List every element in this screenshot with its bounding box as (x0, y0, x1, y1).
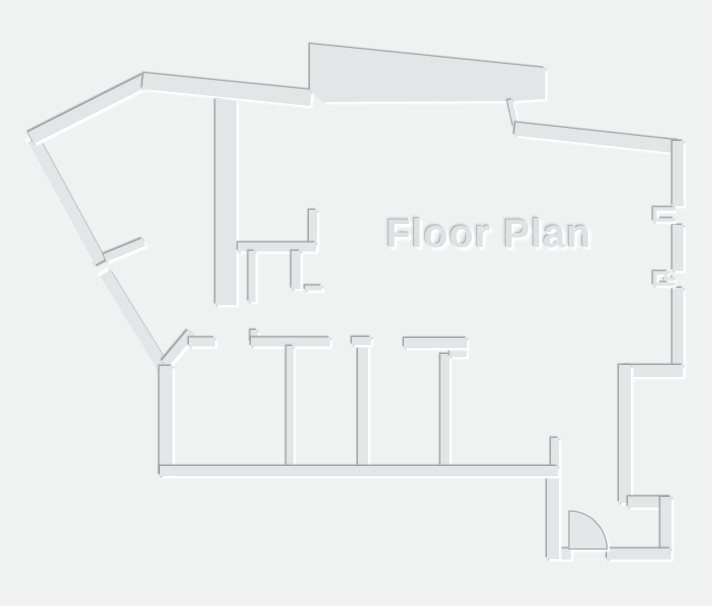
outer-wall-diagonal-left-lower (105, 273, 164, 369)
floor-plan-canvas (0, 0, 712, 606)
entry-door (569, 511, 607, 549)
roof-wall-left (143, 81, 311, 98)
step-connector (510, 100, 516, 127)
interior-stub-diagonal (105, 242, 144, 258)
door-swing-arc (569, 511, 607, 549)
outer-wall-diagonal-left-upper (33, 139, 100, 262)
window-jamb-lower (655, 273, 674, 284)
top-terrace-slab (310, 44, 545, 102)
roof-wall-right (515, 129, 679, 147)
floor-plan-title: Floor Plan (386, 212, 592, 257)
room1-wall-diagonal (165, 333, 191, 364)
exterior-diagonal-walls (33, 139, 164, 369)
window-jamb-upper (655, 209, 674, 220)
outer-wall-diagonal-top (31, 80, 146, 138)
floor-plan: Floor Plan (0, 0, 712, 606)
